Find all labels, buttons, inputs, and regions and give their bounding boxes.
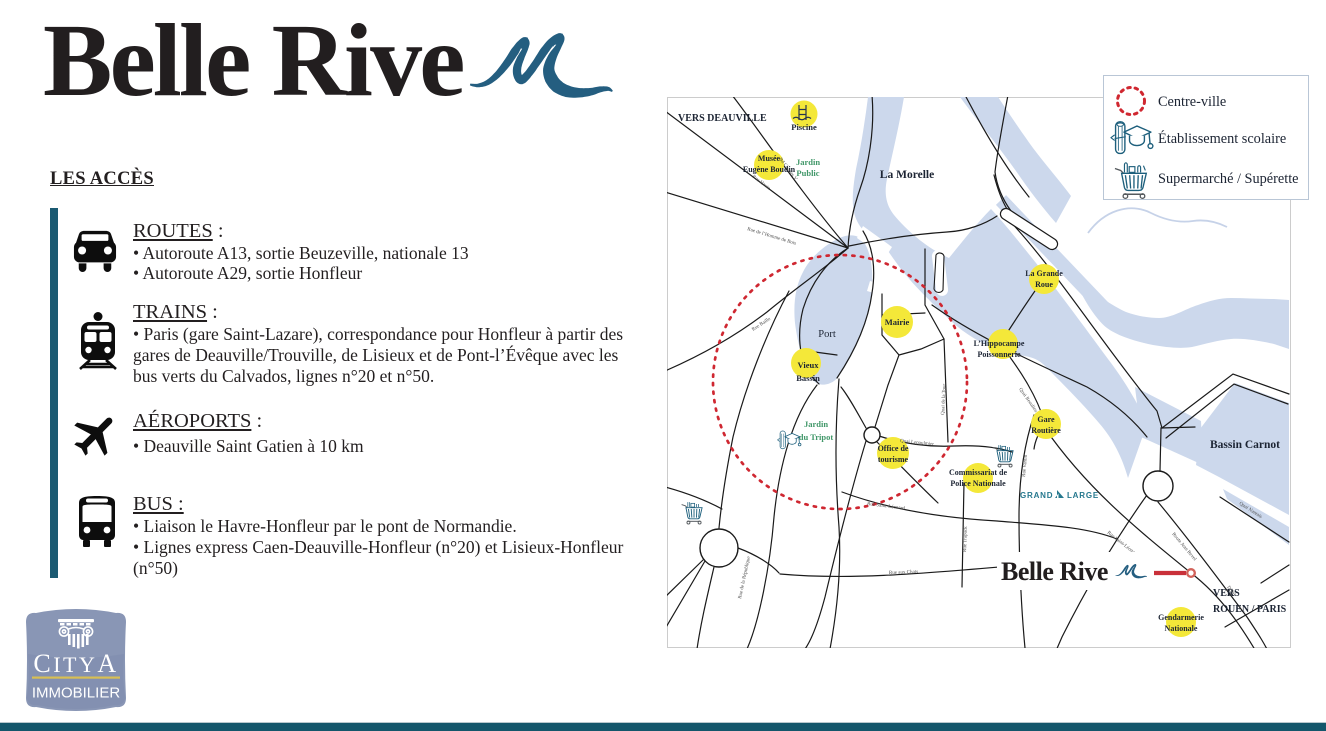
svg-text:IMMOBILIER: IMMOBILIER xyxy=(32,685,121,702)
svg-text:Établissement scolaire: Établissement scolaire xyxy=(1158,130,1286,147)
svg-text:Office de: Office de xyxy=(878,444,909,453)
svg-text:Belle Rive: Belle Rive xyxy=(1001,557,1108,586)
svg-text:Rue Trapuck: Rue Trapuck xyxy=(963,526,969,552)
svg-text:La Grande: La Grande xyxy=(1025,269,1063,278)
svg-text:Bassin: Bassin xyxy=(796,373,820,383)
svg-text:VERS DEAUVILLE: VERS DEAUVILLE xyxy=(678,113,767,124)
svg-text:du Tripot: du Tripot xyxy=(799,432,834,442)
svg-text:Public: Public xyxy=(796,168,819,178)
svg-text:CITYA: CITYA xyxy=(33,649,118,678)
svg-text:Poissonnerie: Poissonnerie xyxy=(977,350,1021,359)
svg-text:Police Nationale: Police Nationale xyxy=(950,479,1006,488)
svg-text:Rue aux Chats: Rue aux Chats xyxy=(889,570,918,576)
svg-text:Routière: Routière xyxy=(1031,426,1061,435)
svg-text:Centre-ville: Centre-ville xyxy=(1158,94,1226,110)
svg-text:LARGE: LARGE xyxy=(1067,491,1099,500)
svg-text:Piscine: Piscine xyxy=(791,122,817,132)
svg-text:GRAND: GRAND xyxy=(1020,491,1053,500)
svg-text:ROUEN / PARIS: ROUEN / PARIS xyxy=(1213,604,1287,615)
svg-text:Nationale: Nationale xyxy=(1165,624,1198,633)
svg-text:L’Hippocampe: L’Hippocampe xyxy=(974,339,1025,348)
svg-text:tourisme: tourisme xyxy=(878,455,909,464)
svg-text:Gendarmerie: Gendarmerie xyxy=(1158,613,1204,622)
svg-text:Supermarché / Supérette: Supermarché / Supérette xyxy=(1158,171,1299,187)
svg-text:Mairie: Mairie xyxy=(885,317,910,327)
svg-text:Commissariat de: Commissariat de xyxy=(949,468,1007,477)
svg-text:Port: Port xyxy=(818,329,836,340)
svg-text:Gare: Gare xyxy=(1037,415,1055,424)
svg-text:Bassin Carnot: Bassin Carnot xyxy=(1210,439,1280,451)
svg-text:Jardin: Jardin xyxy=(796,157,820,167)
svg-text:Jardin: Jardin xyxy=(804,419,828,429)
svg-text:Musée: Musée xyxy=(758,154,781,163)
svg-text:Roue: Roue xyxy=(1035,280,1053,289)
svg-text:La Morelle: La Morelle xyxy=(880,169,934,181)
svg-text:Vieux: Vieux xyxy=(798,360,820,370)
